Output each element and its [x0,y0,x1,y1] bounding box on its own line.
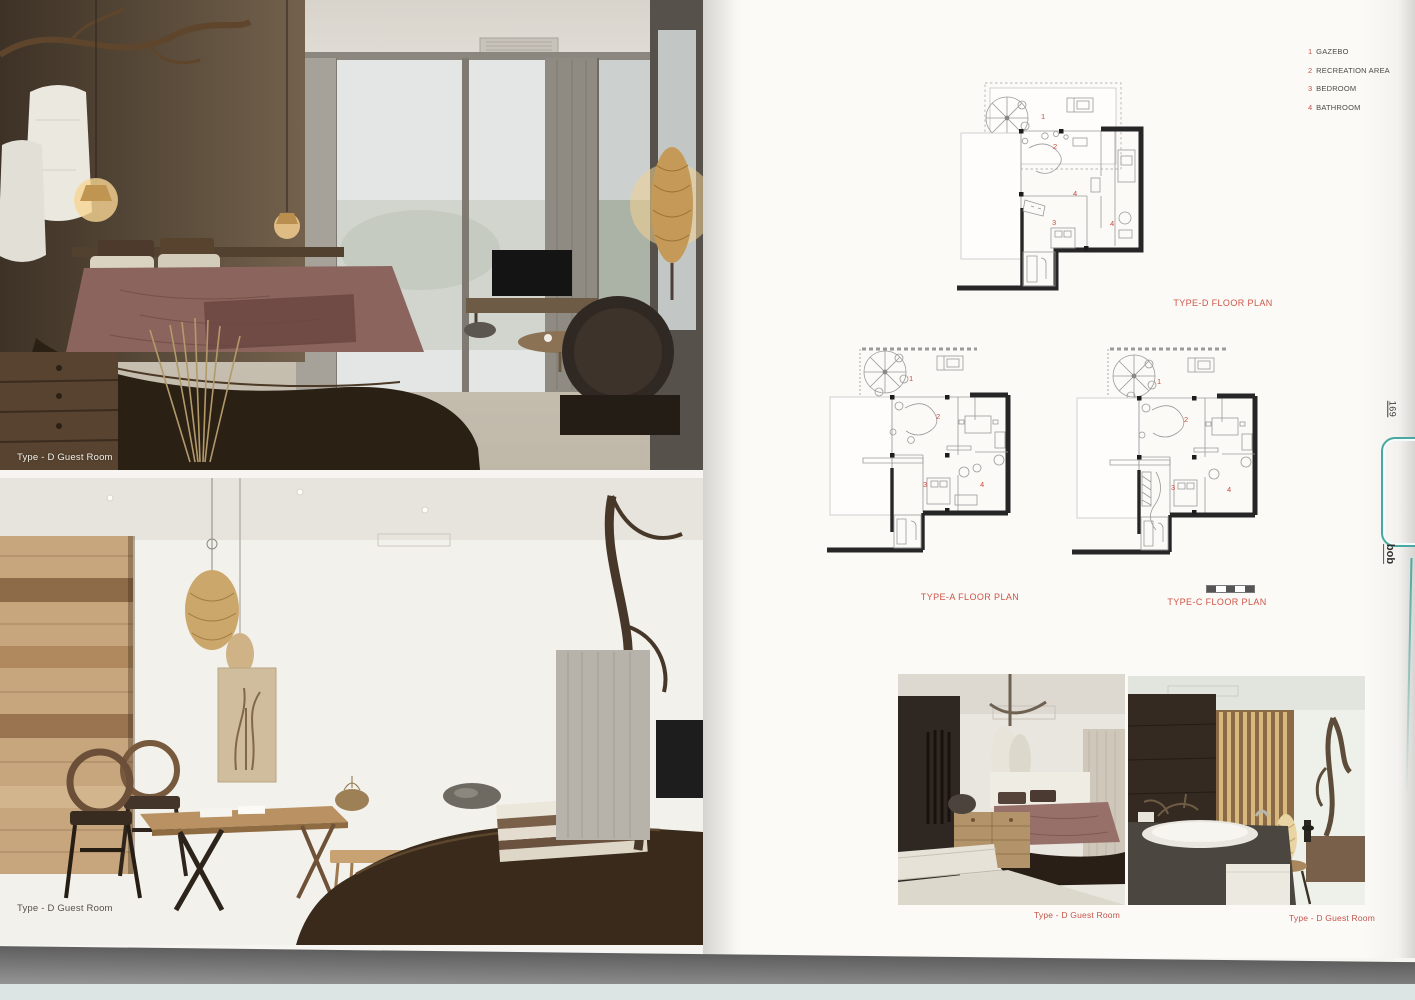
lounge-chair-icon [1188,358,1214,372]
tv-icon [656,720,703,798]
photo-caption: Type - D Guest Room [1210,913,1375,923]
scale-bar-icon [1206,585,1255,593]
dining-photo-art [0,478,703,945]
wood-counter-icon [1306,836,1365,882]
legend-item: 4 BATHROOM [1308,104,1390,112]
lounge-chair-icon [937,356,963,370]
type-d-floor-plan: 1 2 4 3 4 [955,78,1170,300]
photo-caption: Type - D Guest Room [17,452,113,463]
legend-label: GAZEBO [1316,48,1348,56]
photo-guest-room-dining: Type - D Guest Room [0,478,703,945]
type-a-plan-label: TYPE-A FLOOR PLAN [890,592,1050,602]
photo-caption: Type - D Guest Room [17,903,113,914]
gazebo-icon [864,351,908,396]
towel-icon [1226,864,1290,905]
plan-marker: 2 [1184,415,1188,424]
bedroom-photo-art [0,0,703,470]
scan-background-strip [0,984,1415,1000]
type-d-plan-label: TYPE-D FLOOR PLAN [1143,298,1303,308]
plan-marker: 1 [1157,377,1161,386]
legend-number: 3 [1308,85,1312,93]
legend-number: 2 [1308,67,1312,75]
plan-marker: 1 [1041,112,1045,121]
spine-shadow [703,0,737,958]
bath-detail-photo-art [1128,676,1365,905]
bed-detail-photo-art [898,674,1125,905]
type-c-floor-plan: 1 2 3 4 [1072,340,1277,568]
legend-label: BATHROOM [1316,104,1360,112]
terrace-outline [830,397,892,515]
towel-roll-icon [1138,812,1154,822]
plan-marker: 4 [980,480,984,489]
curtain-icon [556,650,650,840]
stone-vase-icon [948,794,976,814]
legend-number: 4 [1308,104,1312,112]
gazebo-icon [1113,355,1156,400]
plan-number-markers: 1 2 3 4 [909,374,984,489]
branch-art-panel-icon [218,668,276,782]
photo-guest-room-bath-detail [1128,676,1365,905]
plan-marker: 4 [1073,189,1077,198]
plan-legend: 1 GAZEBO 2 RECREATION AREA 3 BEDROOM 4 B… [1308,48,1390,122]
photo-guest-room-bed-detail [898,674,1125,905]
legend-item: 1 GAZEBO [1308,48,1390,56]
ceiling-vent-icon [480,38,558,54]
legend-label: BEDROOM [1316,85,1356,93]
legend-item: 3 BEDROOM [1308,85,1390,93]
terrace-outline [1077,398,1139,518]
type-a-floor-plan: 1 2 3 4 [827,340,1032,568]
book-spread-scan: Type - D Guest Room [0,0,1415,1000]
legend-number: 1 [1308,48,1312,56]
plan-marker: 2 [936,412,940,421]
plan-marker: 1 [909,374,913,383]
page-number: 169 [1387,401,1397,418]
terrace-outline [961,133,1021,259]
legend-label: RECREATION AREA [1316,67,1390,75]
photo-caption: Type - D Guest Room [955,910,1120,920]
publisher-logo: bob [1383,544,1395,564]
plan-marker: 4 [1227,485,1231,494]
plan-marker: 2 [1053,142,1057,151]
plan-marker: 4 [1110,219,1114,228]
legend-item: 2 RECREATION AREA [1308,67,1390,75]
plan-marker: 3 [1171,483,1175,492]
photo-guest-room-bedroom: Type - D Guest Room [0,0,703,470]
plan-marker: 3 [923,480,927,489]
plan-marker: 3 [1052,218,1056,227]
edge-tab-outline [1381,437,1415,547]
type-c-plan-label: TYPE-C FLOOR PLAN [1137,597,1297,607]
